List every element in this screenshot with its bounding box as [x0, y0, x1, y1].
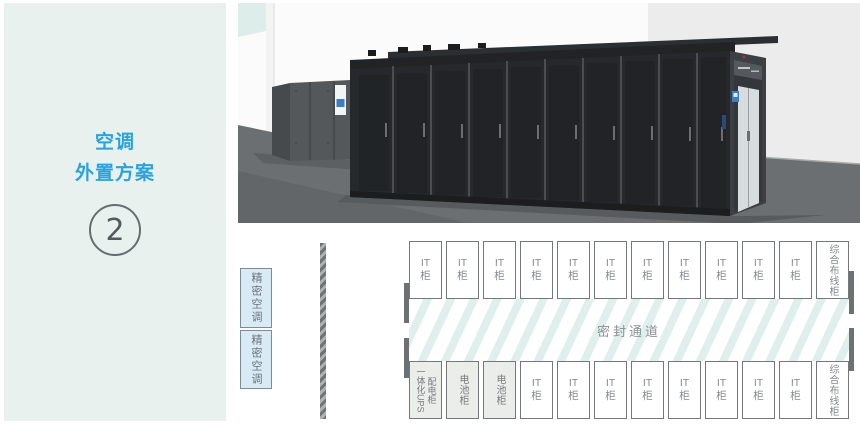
step-number: 2 — [105, 213, 124, 248]
sealed-aisle: 密封通道 — [409, 299, 849, 361]
brand-logo-mark — [743, 56, 746, 59]
ups-label: 一体化UPS — [415, 367, 426, 413]
cabinet-row-bottom: 一体化UPS 配电柜 电池柜 电池柜 IT 柜 IT 柜 IT 柜 IT 柜 I… — [409, 361, 849, 419]
page-title-line1: 空调 — [75, 127, 155, 158]
it-cabinet: IT 柜 — [668, 361, 701, 419]
battery-cabinet: 电池柜 — [446, 361, 479, 419]
it-cabinet: IT 柜 — [520, 361, 553, 419]
sidebar: 空调 外置方案 2 — [4, 3, 226, 421]
precision-ac-box-2: 精密空调 — [240, 330, 272, 389]
datacenter-render — [238, 3, 860, 223]
it-cabinet: IT 柜 — [779, 361, 812, 419]
room-wall-hatched — [320, 243, 326, 419]
it-cabinet: IT 柜 — [409, 241, 442, 299]
it-cabinet: IT 柜 — [483, 241, 516, 299]
it-cabinet: IT 柜 — [557, 361, 590, 419]
pdu-label: 配电柜 — [426, 377, 437, 404]
aisle-end-wall-right-top — [849, 271, 854, 314]
door-handle — [747, 131, 750, 141]
it-cabinet: IT 柜 — [557, 241, 590, 299]
it-cabinet: IT 柜 — [668, 241, 701, 299]
it-cabinet: IT 柜 — [631, 241, 664, 299]
it-cabinet: IT 柜 — [779, 241, 812, 299]
it-cabinet: IT 柜 — [594, 361, 627, 419]
sealed-aisle-label: 密封通道 — [597, 321, 661, 340]
crac-display — [337, 99, 345, 107]
it-cabinet: IT 柜 — [705, 361, 738, 419]
it-cabinet: IT 柜 — [594, 241, 627, 299]
precision-ac-label: 精密空调 — [248, 272, 264, 324]
cabinet-row-top: IT 柜 IT 柜 IT 柜 IT 柜 IT 柜 IT 柜 IT 柜 IT 柜 … — [409, 241, 849, 299]
it-cabinet: IT 柜 — [520, 241, 553, 299]
it-cabinet: IT 柜 — [631, 361, 664, 419]
it-cabinet: IT 柜 — [446, 241, 479, 299]
aisle-end-wall-right-bottom — [849, 328, 854, 371]
crac-unit — [272, 80, 350, 161]
it-cabinet: IT 柜 — [742, 361, 775, 419]
cabling-cabinet: 综合布线柜 — [816, 241, 849, 299]
precision-ac-label: 精密空调 — [248, 334, 264, 386]
page-title-line2: 外置方案 — [75, 158, 155, 189]
cabling-cabinet: 综合布线柜 — [816, 361, 849, 419]
it-cabinet: IT 柜 — [742, 241, 775, 299]
slide: 空调 外置方案 2 — [0, 0, 860, 437]
page-title: 空调 外置方案 — [75, 127, 155, 189]
ups-pdu-cabinet: 一体化UPS 配电柜 — [409, 361, 442, 419]
precision-ac-box-1: 精密空调 — [240, 268, 272, 328]
it-cabinet: IT 柜 — [705, 241, 738, 299]
aisle-door-handle — [722, 115, 726, 129]
step-number-badge: 2 — [89, 204, 141, 256]
rack-pod — [350, 36, 778, 216]
battery-cabinet: 电池柜 — [483, 361, 516, 419]
